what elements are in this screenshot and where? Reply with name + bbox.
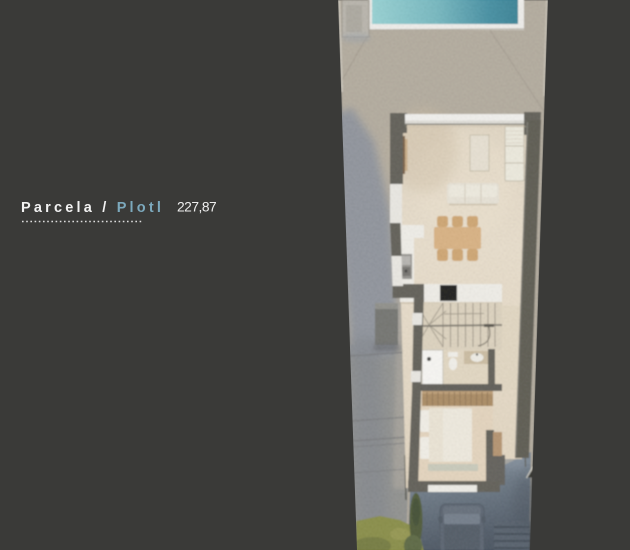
svg-text:227,87: 227,87 (177, 200, 216, 215)
svg-text:Parcela / Plotl: Parcela / Plotl (21, 200, 164, 216)
